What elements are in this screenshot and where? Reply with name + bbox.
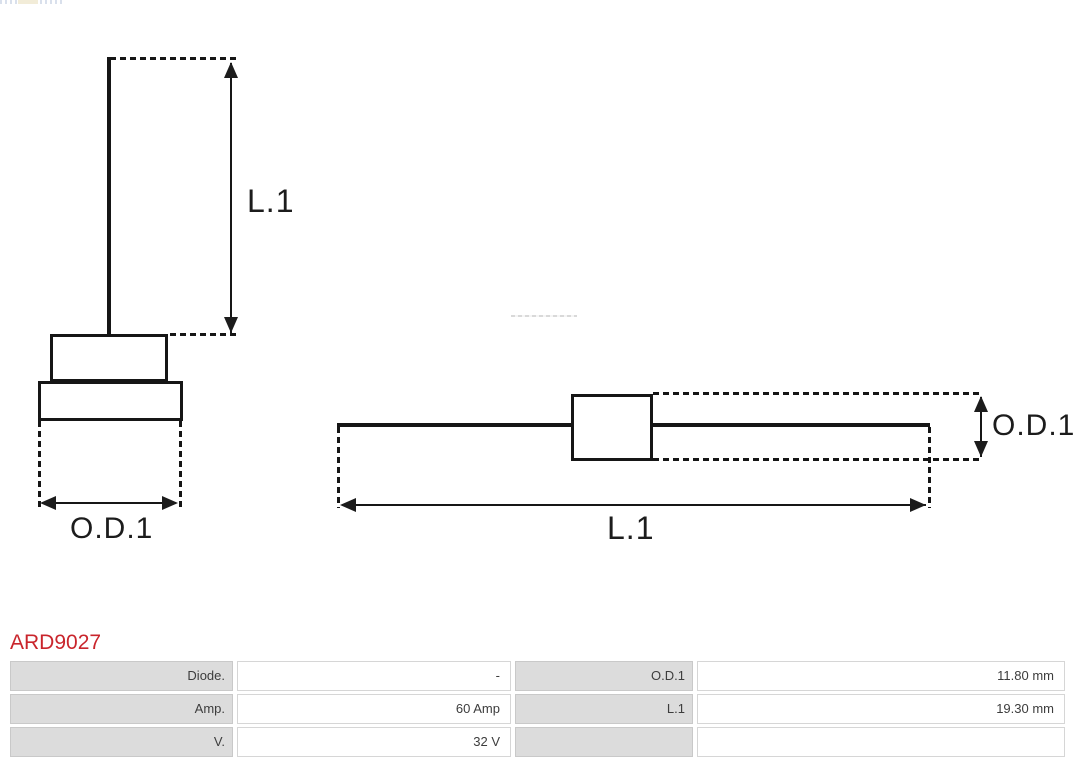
length-dimension-label: L.1 [607,510,654,547]
spec-value-cell: 32 V [237,727,511,757]
arrowhead-left-icon [40,496,56,510]
arrowhead-right-icon [162,496,178,510]
extension-dash-bottom [170,333,238,336]
arrowhead-up-icon [974,396,988,412]
dimension-line-diameter [42,502,176,504]
diameter-dimension-label: O.D.1 [992,409,1075,443]
diameter-dimension-label: O.D.1 [70,512,153,546]
spec-label-cell [515,727,693,757]
lead-line-left [337,423,571,427]
diode-body-top [50,334,168,382]
spec-row: Diode. - O.D.1 11.80 mm [10,661,1065,691]
spec-value-cell: 60 Amp [237,694,511,724]
part-number-link[interactable]: ARD9027 [10,631,101,655]
arrowhead-left-icon [340,498,356,512]
spec-value-cell: - [237,661,511,691]
spec-value-cell [697,727,1065,757]
spec-label-cell: Amp. [10,694,233,724]
spec-row: Amp. 60 Amp L.1 19.30 mm [10,694,1065,724]
arrowhead-up-icon [224,62,238,78]
lead-line [107,57,111,336]
spec-label-cell: V. [10,727,233,757]
page-corner-artifact [0,0,63,4]
dimension-line-length [230,63,232,333]
extension-dash-top [110,57,238,60]
extension-dash-right [179,421,182,507]
spec-label-cell: Diode. [10,661,233,691]
spec-value-cell: 11.80 mm [697,661,1065,691]
arrowhead-down-icon [224,317,238,333]
spec-label-cell: O.D.1 [515,661,693,691]
extension-dash-right [928,427,931,508]
diode-body-base [38,381,183,421]
extension-dash-top [653,392,983,395]
extension-dash-left [337,427,340,508]
lead-line-right [653,423,930,427]
product-page: L.1 O.D.1 O.D.1 L.1 [0,0,1080,766]
dimension-line-length [342,504,926,506]
spec-label-cell: L.1 [515,694,693,724]
watermark-line [511,315,577,317]
arrowhead-right-icon [910,498,926,512]
length-dimension-label: L.1 [247,183,294,220]
spec-table: Diode. - O.D.1 11.80 mm Amp. 60 Amp L.1 … [10,661,1065,760]
extension-dash-left [38,421,41,507]
spec-value-cell: 19.30 mm [697,694,1065,724]
arrowhead-down-icon [974,441,988,457]
diode-body [571,394,653,461]
spec-row: V. 32 V [10,727,1065,757]
extension-dash-bottom [653,458,983,461]
